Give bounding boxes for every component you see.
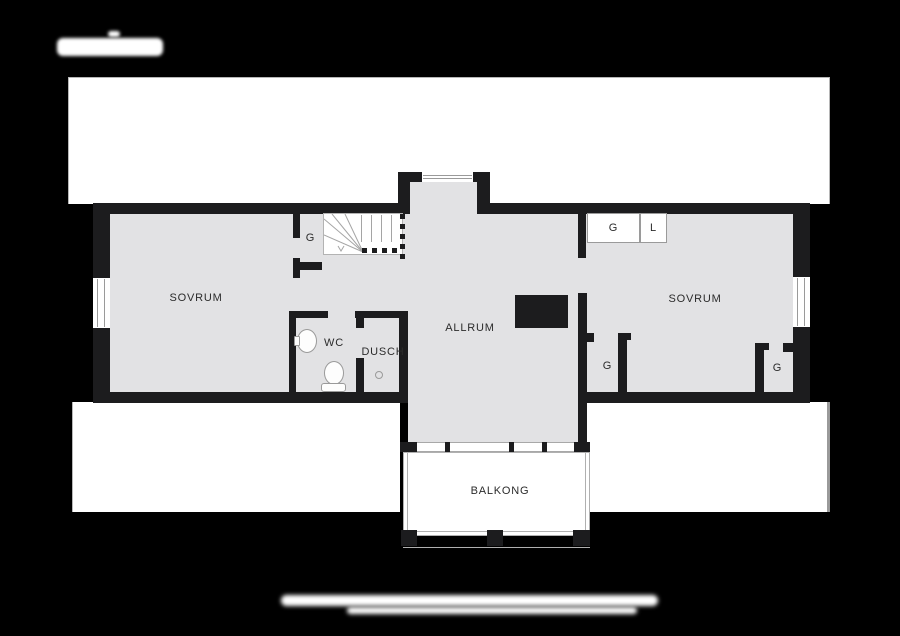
closet-label-wardrobe-g: G: [609, 222, 618, 234]
wall-right-closet1-side: [618, 333, 627, 392]
wall-allrum-partition-lower: [578, 293, 587, 444]
opening-dot: [392, 248, 397, 253]
wall-stair-closet-bottom: [293, 262, 322, 270]
dormer-wall-top-right: [473, 172, 490, 182]
opening-dot: [382, 248, 387, 253]
shower-drain: [375, 371, 383, 379]
room-label-wc: WC: [324, 337, 344, 349]
closet-label-stair: G: [306, 232, 315, 244]
opening-dot: [400, 214, 405, 219]
window-right-bedroom: [793, 277, 810, 327]
wall-wc-left: [289, 311, 296, 392]
floor-dormer-top: [406, 180, 479, 213]
stair-direction-arrow: [338, 246, 344, 251]
blurred-title-text: [57, 38, 163, 56]
closet-label-right-2: G: [773, 362, 782, 374]
blurred-footer-line-1: [281, 595, 658, 606]
roof-band-bottom-left: [72, 402, 400, 512]
wall-wc-top: [289, 311, 328, 318]
balcony-door-jamb-left: [400, 442, 417, 452]
wall-right-closet2-side: [755, 343, 764, 392]
room-label-allrum: ALLRUM: [445, 322, 494, 334]
blurred-title-diacritic: [108, 31, 120, 37]
floor-dormer-balcony: [408, 396, 578, 444]
opening-dot: [372, 248, 377, 253]
wall-allrum-partition-upper: [578, 214, 586, 258]
floorplan-canvas: SOVRUM ALLRUM WC DUSCH SOVRUM BALKONG G …: [0, 0, 900, 636]
opening-dot: [400, 224, 405, 229]
room-label-sovrum-right: SOVRUM: [668, 293, 721, 305]
sink: [297, 329, 317, 353]
room-label-sovrum-left: SOVRUM: [169, 292, 222, 304]
opening-dot: [400, 234, 405, 239]
room-label-dusch: DUSCH: [361, 346, 404, 358]
closet-label-wardrobe-l: L: [650, 222, 656, 234]
balcony-post-left: [401, 530, 417, 546]
wall-wc-dusch-partition-upper: [356, 311, 364, 328]
toilet-bowl: [324, 361, 344, 385]
toilet-tank: [321, 383, 346, 392]
opening-dot: [400, 244, 405, 249]
blurred-footer-line-2: [347, 607, 637, 614]
wall-wc-dusch-partition-lower: [356, 358, 364, 392]
dormer-window: [422, 172, 473, 182]
chimney: [515, 295, 568, 328]
wall-bottom-left-section: [93, 392, 408, 403]
wall-bottom-right-section: [587, 392, 810, 403]
roof-band-bottom-right: [585, 402, 830, 512]
closet-label-right-1: G: [603, 360, 612, 372]
balcony-bottom-rail: [403, 547, 590, 548]
wall-right-closet2-stub: [783, 343, 793, 352]
window-left-bedroom: [93, 278, 110, 328]
sink-tap: [294, 336, 300, 346]
room-label-balkong: BALKONG: [471, 485, 530, 497]
balcony-window-1: [417, 442, 445, 452]
balcony-door: [450, 442, 509, 452]
wall-right-closet1-stub: [586, 333, 594, 342]
wall-left-bedroom-east-upper: [293, 214, 300, 238]
balcony-window-2: [514, 442, 542, 452]
balcony-post-right: [573, 530, 590, 546]
opening-dot: [362, 248, 367, 253]
dormer-wall-top-left: [398, 172, 422, 182]
balcony-post-mid: [487, 530, 503, 546]
balcony-window-3: [547, 442, 574, 452]
opening-dot: [400, 254, 405, 259]
